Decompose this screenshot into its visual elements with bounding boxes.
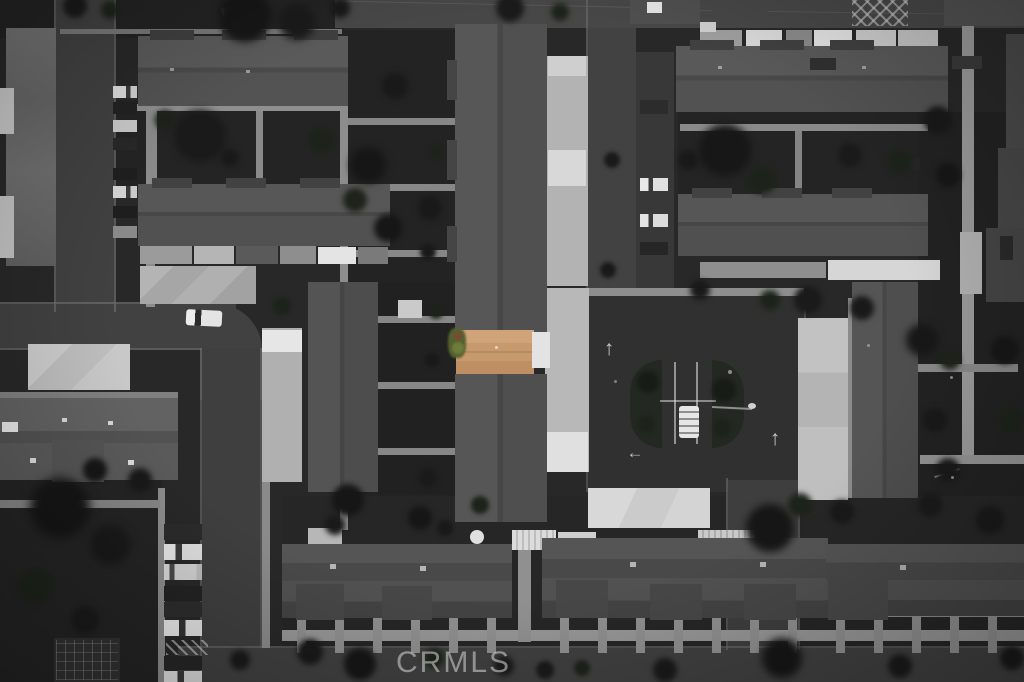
ground-speck (718, 66, 722, 69)
tree (690, 280, 710, 300)
walkway (518, 544, 531, 642)
shrub-red (454, 332, 462, 340)
tree (309, 127, 335, 153)
parked-car (164, 602, 202, 617)
gable (692, 188, 732, 198)
carport-roof (960, 232, 982, 294)
roof-vent (900, 565, 906, 570)
parked-car (810, 58, 836, 70)
parked-car (113, 102, 137, 114)
arrow-up: ↑ (598, 336, 620, 360)
gable (828, 580, 888, 620)
arrow-up: ↑ (764, 426, 786, 450)
tree (699, 124, 751, 176)
building-center-north (455, 24, 547, 332)
tree (918, 493, 942, 517)
walkway (988, 611, 997, 653)
walkway (795, 131, 802, 195)
walkway (256, 111, 263, 187)
roof-vent (108, 421, 113, 425)
truck-top (647, 2, 662, 13)
carport-roof (588, 488, 710, 528)
ground-speck (951, 476, 954, 479)
street-left-vertical (56, 0, 114, 312)
tree (746, 504, 794, 552)
tree (101, 1, 119, 19)
carport-roof (358, 247, 388, 264)
no-parking-hatch (166, 640, 208, 655)
ground-speck (170, 68, 174, 71)
van-in-lot (679, 406, 699, 438)
arrow-left: ← (622, 444, 648, 460)
carport-roof (700, 262, 826, 278)
ground-speck (246, 70, 250, 73)
gable (744, 584, 796, 620)
tree (279, 4, 315, 40)
parked-car (164, 544, 202, 560)
tree (90, 525, 130, 565)
tree (748, 166, 776, 194)
tree (794, 286, 822, 314)
patio-lattice (852, 0, 908, 26)
tree (30, 478, 90, 538)
roof-vent (420, 566, 426, 571)
tree (940, 350, 960, 370)
tree (155, 110, 175, 130)
house-top-right (712, 0, 768, 20)
tree (976, 506, 1004, 534)
parked-car (164, 671, 202, 682)
tree (425, 353, 439, 367)
carport-roof (140, 246, 192, 264)
gable (830, 40, 874, 50)
roof-vent (30, 458, 36, 463)
parked-car (113, 120, 137, 132)
patio-white (532, 332, 550, 368)
tree (788, 493, 812, 517)
carport-roof (0, 88, 14, 134)
building-far-right (1006, 34, 1024, 160)
tree (471, 496, 489, 514)
gable (447, 60, 457, 100)
tree (713, 419, 731, 437)
street-mid-vertical (202, 348, 260, 682)
carport-roof (546, 432, 588, 472)
tree (936, 458, 960, 482)
tree (762, 638, 802, 678)
ground-speck (950, 376, 953, 379)
walkway (950, 611, 959, 653)
tree (551, 3, 569, 21)
walkway (348, 118, 456, 125)
tree (923, 408, 947, 432)
ground-speck (614, 380, 617, 383)
gable (382, 586, 432, 620)
patio-umbrella (470, 530, 484, 544)
building-mid-left-vertical (308, 282, 378, 492)
ground-speck (867, 344, 870, 347)
tree (343, 188, 367, 212)
stall-line (660, 400, 716, 402)
tree (273, 297, 291, 315)
tree (19, 569, 53, 603)
gable (300, 178, 340, 188)
carport-roof (280, 246, 316, 264)
building-top-left (138, 36, 348, 106)
tree (174, 110, 226, 162)
parked-car (164, 586, 202, 601)
tree (574, 660, 590, 676)
tree (830, 500, 854, 524)
roof-vent (630, 562, 636, 567)
roof-vent (128, 460, 134, 465)
solar-panel-grid (56, 640, 118, 680)
aerial-photo: ↑↑← CRMLS (0, 0, 1024, 682)
walkway (920, 455, 1024, 464)
crmls-watermark: CRMLS (396, 646, 511, 680)
tree (998, 408, 1022, 432)
tree (297, 639, 323, 665)
ground-speck (728, 370, 732, 374)
stall-line (674, 362, 676, 444)
carport-roof (318, 247, 356, 264)
carport-roof (0, 196, 14, 258)
ground-speck (862, 66, 866, 69)
tree (437, 520, 453, 536)
gable (152, 178, 192, 188)
roof-vent (330, 564, 336, 569)
roof-vent (760, 562, 766, 567)
gable (832, 188, 872, 198)
tree (637, 415, 655, 433)
walkway (918, 364, 1018, 372)
roof-vent (62, 418, 67, 422)
carport-roof (140, 266, 256, 304)
tree (429, 145, 443, 159)
shrubs-green (452, 342, 464, 354)
parked-car (640, 214, 668, 227)
parked-car (113, 206, 137, 218)
light-pole-head (748, 403, 756, 409)
parked-car (113, 186, 137, 198)
building-top-right (676, 46, 948, 112)
highlighted-roof-ridge (456, 351, 534, 353)
tree (838, 143, 862, 167)
tree (536, 661, 554, 679)
house-top-right (630, 0, 700, 24)
carport-roof (262, 330, 302, 352)
tree (850, 296, 874, 320)
parked-car (1000, 236, 1013, 260)
parked-car (113, 138, 137, 150)
parked-truck (164, 620, 202, 636)
parked-car (113, 168, 137, 180)
carport-roof (236, 246, 278, 264)
gable (556, 580, 608, 618)
parked-car (640, 242, 668, 255)
tree (128, 468, 152, 492)
tree (991, 336, 1019, 364)
parked-car (952, 56, 982, 69)
carport-roof (548, 56, 586, 76)
parked-car (113, 226, 137, 238)
tree (429, 305, 443, 319)
tree (712, 378, 736, 402)
building-right-mid (678, 194, 928, 256)
tree (760, 290, 780, 310)
walkway (158, 488, 165, 682)
parked-car (164, 524, 202, 540)
gable (447, 140, 457, 180)
tree (325, 515, 345, 535)
tree (600, 262, 616, 278)
gable (760, 40, 804, 50)
tree (230, 650, 250, 670)
house-top-right (944, 0, 1024, 26)
tree (350, 147, 386, 183)
tree (906, 324, 938, 356)
carport-roof (828, 260, 940, 280)
parked-van (164, 564, 202, 580)
parked-car (113, 86, 137, 98)
tree (924, 106, 952, 134)
tree (418, 196, 442, 220)
gable (447, 226, 457, 262)
tree (604, 152, 620, 168)
building-center-south (455, 374, 547, 522)
tree (936, 163, 960, 187)
parked-car (164, 656, 202, 670)
tree (678, 150, 698, 170)
curb (114, 0, 116, 312)
parked-van (640, 100, 668, 114)
parked-car (2, 422, 18, 432)
tree (332, 484, 364, 516)
tree (71, 606, 99, 634)
pickup-truck-white (186, 309, 223, 327)
tree (419, 469, 437, 487)
tree (888, 654, 912, 678)
tree (637, 371, 659, 393)
carport-roof (798, 318, 848, 500)
gable (150, 30, 194, 40)
walkway (912, 611, 921, 653)
ground-speck (495, 346, 498, 349)
gable (296, 584, 344, 620)
parked-car (640, 178, 668, 191)
carport-roof (194, 246, 234, 264)
tree (888, 150, 912, 174)
gable (226, 178, 266, 188)
ac-unit (700, 22, 716, 32)
gable (690, 40, 734, 50)
carport-roof (398, 300, 422, 318)
tree (344, 648, 376, 680)
carport-roof (28, 344, 130, 390)
tree (382, 73, 408, 99)
tree (221, 149, 239, 167)
tree (1000, 646, 1024, 670)
gable (650, 584, 702, 620)
tree (420, 244, 436, 260)
carport-roof (548, 150, 586, 186)
tree (83, 458, 107, 482)
tree (374, 214, 402, 242)
tree (653, 658, 677, 682)
tree (408, 506, 432, 530)
